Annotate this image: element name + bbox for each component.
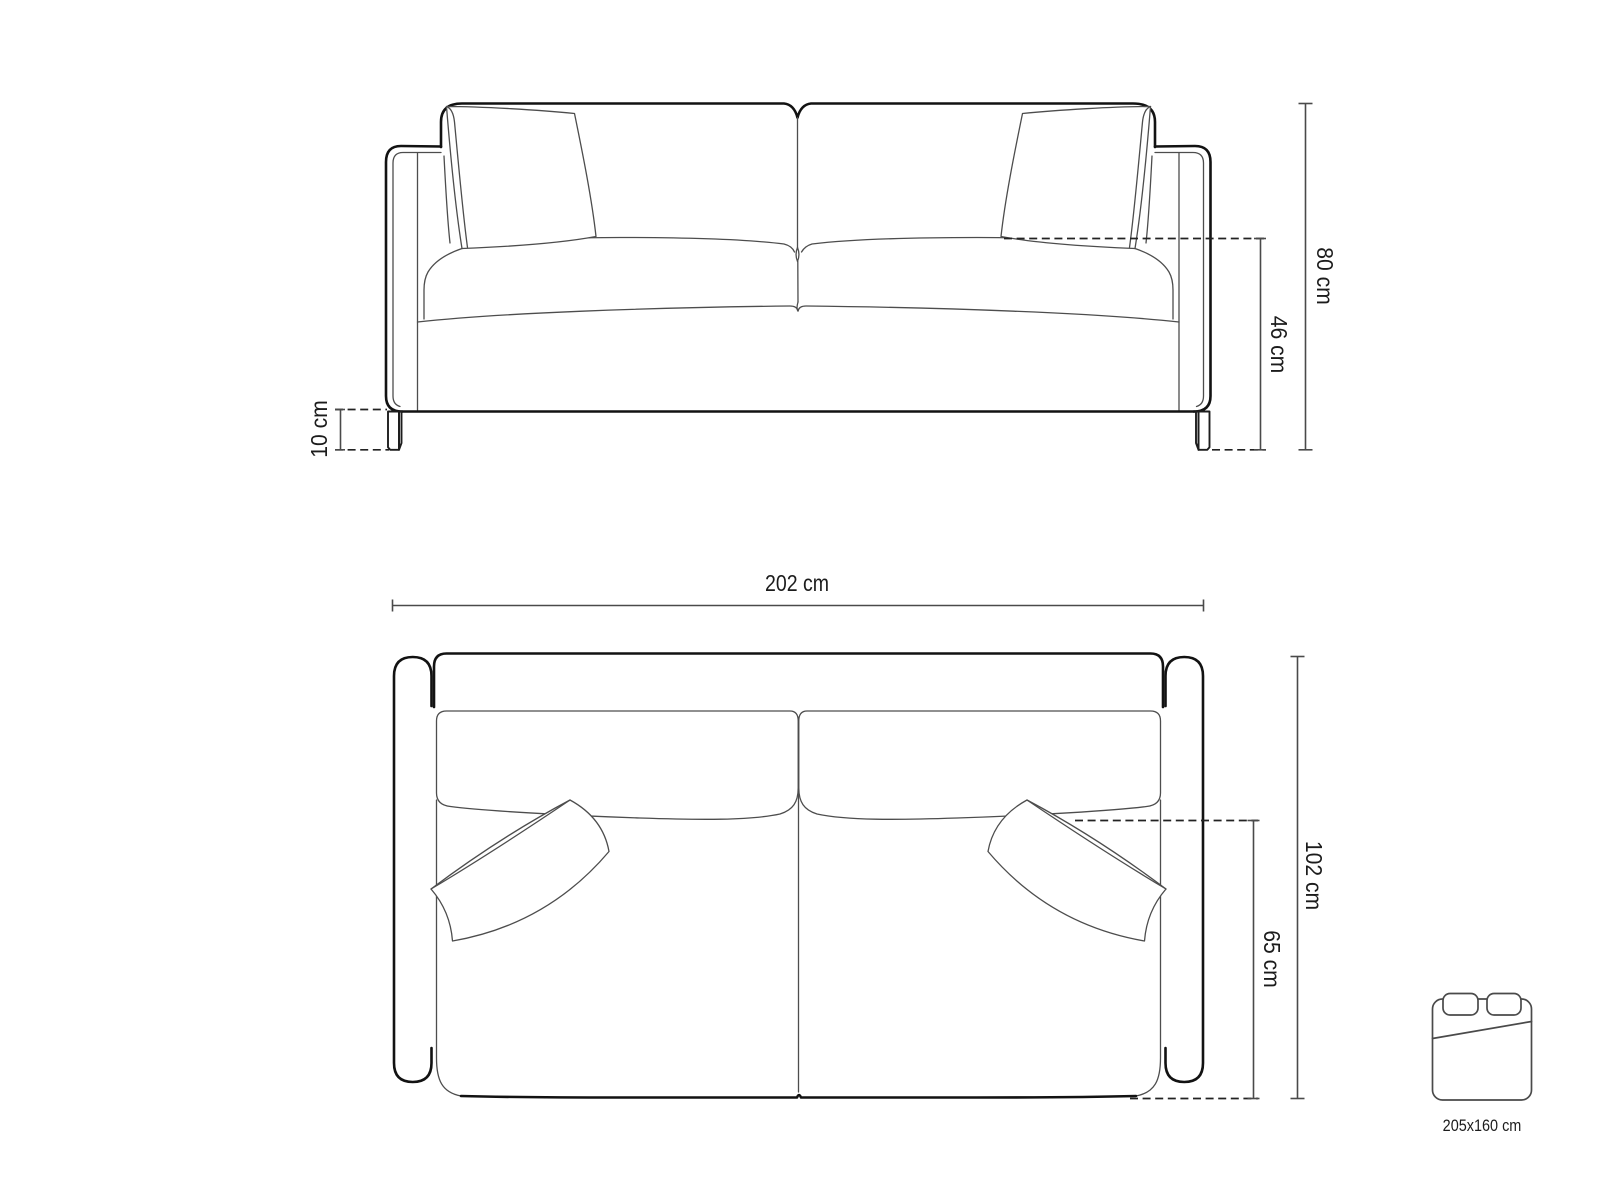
svg-text:10 cm: 10 cm: [306, 400, 332, 458]
svg-text:102 cm: 102 cm: [1301, 841, 1327, 910]
svg-text:46 cm: 46 cm: [1266, 316, 1292, 374]
svg-text:80 cm: 80 cm: [1312, 247, 1338, 305]
svg-text:202 cm: 202 cm: [765, 571, 829, 597]
svg-text:65 cm: 65 cm: [1259, 930, 1285, 988]
svg-text:205x160 cm: 205x160 cm: [1443, 1117, 1522, 1135]
